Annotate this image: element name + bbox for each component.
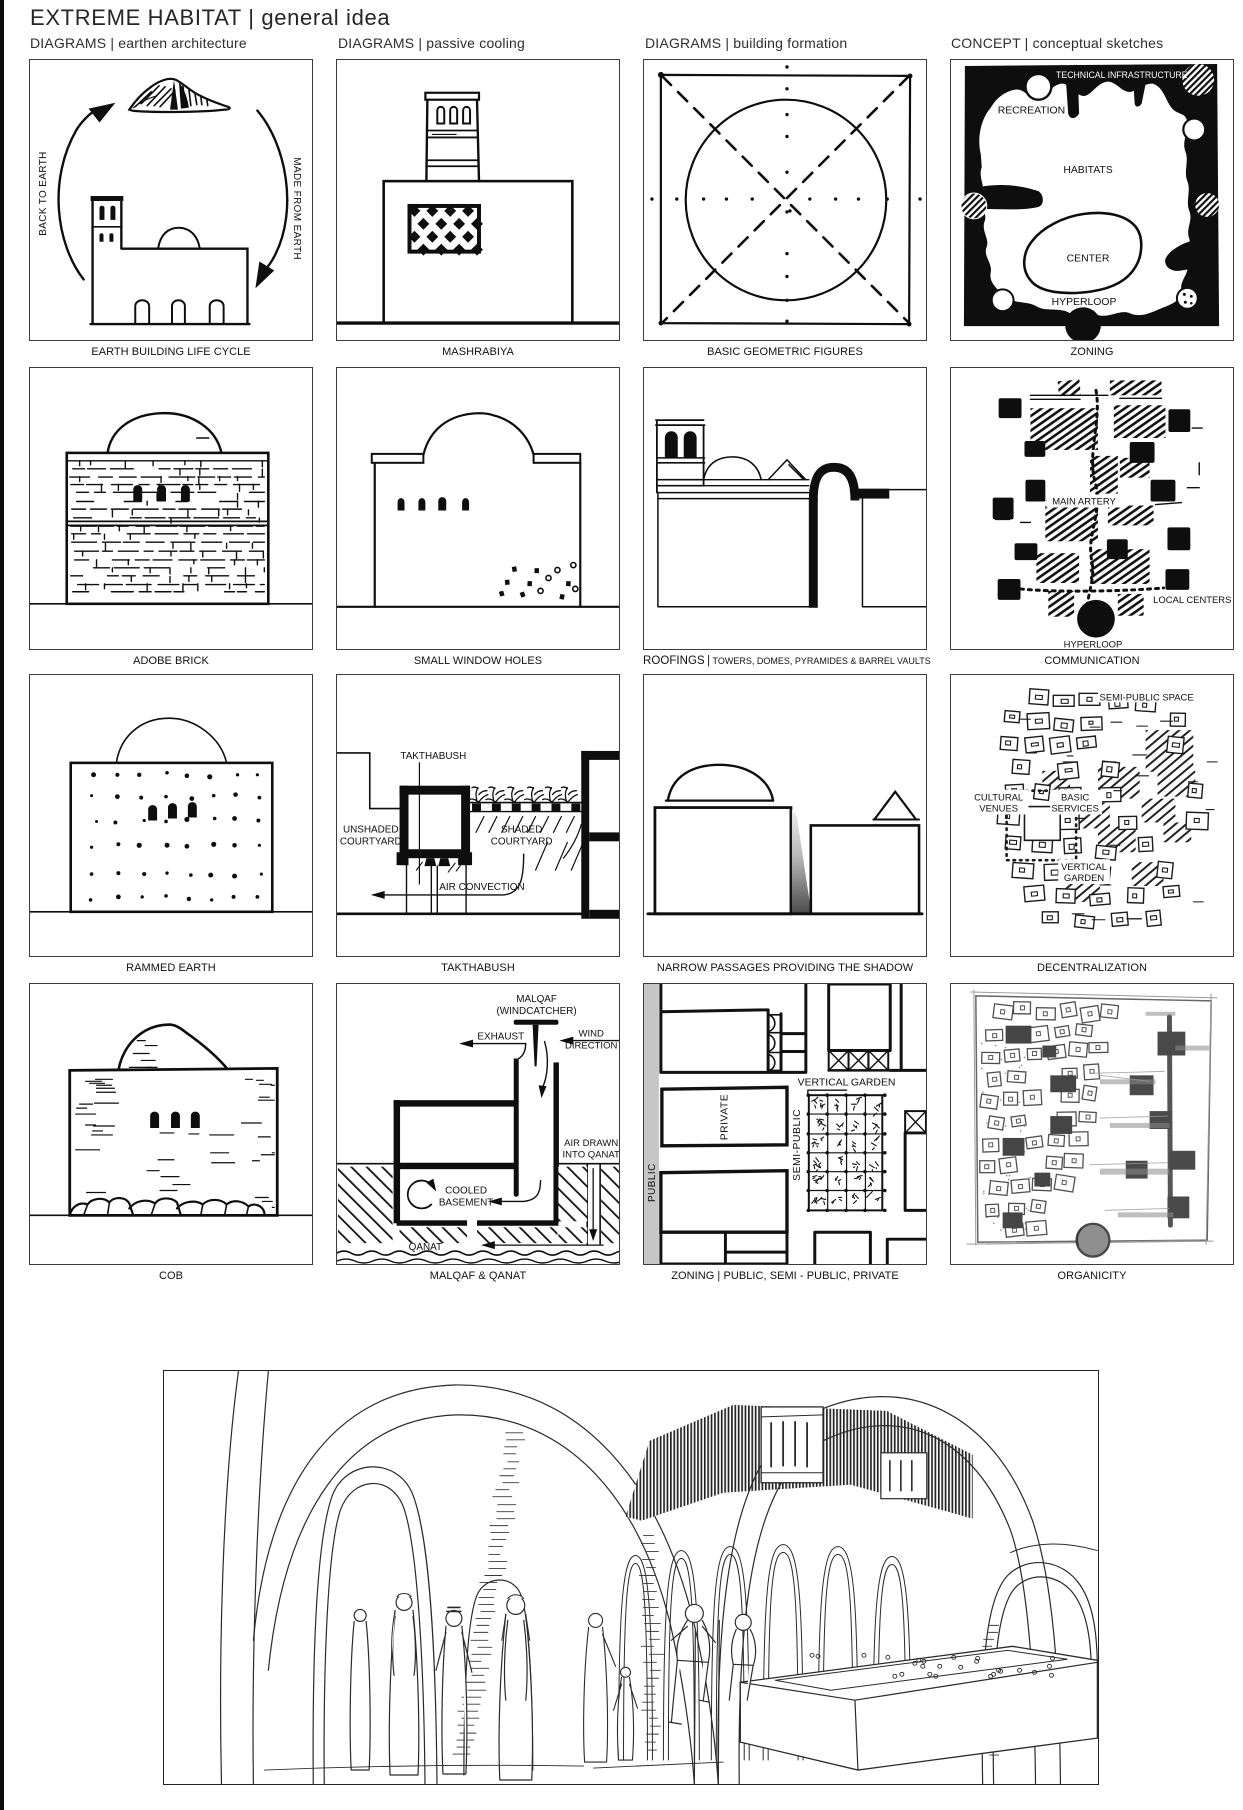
svg-text:BACK TO EARTH: BACK TO EARTH <box>38 151 49 235</box>
svg-text:CENTER: CENTER <box>1067 254 1110 265</box>
svg-text:INTO QANAT: INTO QANAT <box>563 1150 619 1161</box>
svg-text:SEMI-PUBLIC: SEMI-PUBLIC <box>792 1109 803 1181</box>
svg-text:SEMI-PUBLIC SPACE: SEMI-PUBLIC SPACE <box>1100 691 1194 702</box>
svg-text:COURTYARD: COURTYARD <box>491 836 553 847</box>
svg-text:QANAT: QANAT <box>409 1242 442 1253</box>
svg-text:SERVICES: SERVICES <box>1051 803 1098 814</box>
svg-text:EXHAUST: EXHAUST <box>477 1032 524 1043</box>
svg-text:PUBLIC: PUBLIC <box>647 1163 658 1202</box>
svg-text:HYPERLOOP: HYPERLOOP <box>1064 639 1123 649</box>
svg-text:MAIN ARTERY: MAIN ARTERY <box>1052 496 1116 507</box>
svg-text:BASEMENT: BASEMENT <box>439 1197 494 1208</box>
svg-text:MALQAF: MALQAF <box>516 994 557 1005</box>
svg-text:(WINDCATCHER): (WINDCATCHER) <box>497 1006 577 1017</box>
svg-text:SHADED: SHADED <box>501 824 542 835</box>
svg-text:WIND: WIND <box>579 1029 604 1040</box>
svg-text:VERTICAL GARDEN: VERTICAL GARDEN <box>798 1077 896 1088</box>
svg-text:PRIVATE: PRIVATE <box>719 1094 730 1140</box>
svg-text:UNSHADED: UNSHADED <box>343 824 399 835</box>
svg-text:COURTYARD: COURTYARD <box>340 836 402 847</box>
svg-text:MADE FROM EARTH: MADE FROM EARTH <box>291 157 302 260</box>
svg-text:VENUES: VENUES <box>979 803 1018 814</box>
svg-text:TAKTHABUSH: TAKTHABUSH <box>400 751 466 762</box>
svg-text:BASIC: BASIC <box>1061 792 1089 803</box>
svg-text:LOCAL CENTERS: LOCAL CENTERS <box>1153 594 1231 605</box>
svg-text:GARDEN: GARDEN <box>1064 872 1105 883</box>
svg-text:AIR CONVECTION: AIR CONVECTION <box>439 882 524 893</box>
svg-text:CULTURAL: CULTURAL <box>974 792 1023 803</box>
svg-text:COOLED: COOLED <box>445 1186 487 1197</box>
svg-text:HABITATS: HABITATS <box>1063 165 1112 176</box>
svg-text:VERTICAL: VERTICAL <box>1061 861 1107 872</box>
svg-text:RECREATION: RECREATION <box>998 106 1065 117</box>
svg-text:HYPERLOOP: HYPERLOOP <box>1052 297 1117 308</box>
svg-text:TECHNICAL INFRASTRUCTURE: TECHNICAL INFRASTRUCTURE <box>1056 70 1188 80</box>
svg-text:AIR DRAWN: AIR DRAWN <box>564 1138 618 1149</box>
